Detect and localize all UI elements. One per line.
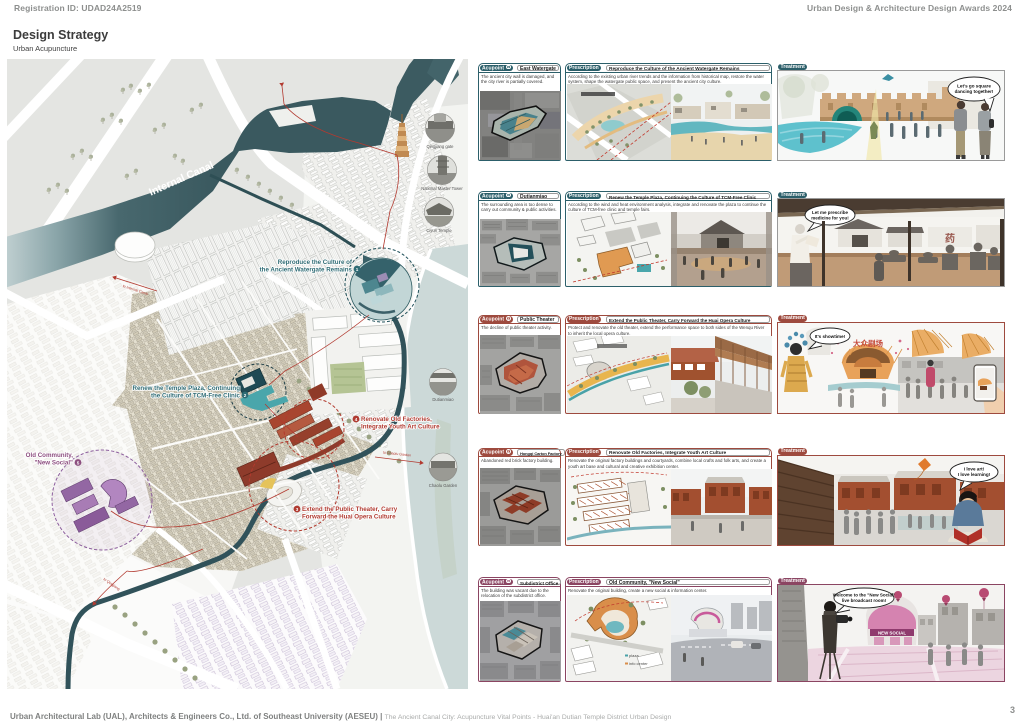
svg-text:Let's go square: Let's go square xyxy=(957,84,991,89)
svg-text:Dutianmiao: Dutianmiao xyxy=(432,397,454,402)
svg-text:NEW SOCIAL: NEW SOCIAL xyxy=(878,631,906,636)
svg-text:Qingjiang gate: Qingjiang gate xyxy=(426,144,454,149)
svg-text:"New Social": "New Social" xyxy=(34,460,73,467)
svg-text:Let me prescribe: Let me prescribe xyxy=(812,210,849,215)
svg-text:Ciyun Temple: Ciyun Temple xyxy=(426,228,452,233)
svg-text:1: 1 xyxy=(356,267,359,272)
svg-text:5: 5 xyxy=(77,461,80,466)
svg-text:Reproduce the Culture of: Reproduce the Culture of xyxy=(278,259,353,266)
svg-text:medicine for you!: medicine for you! xyxy=(811,216,849,221)
svg-text:I love learning!: I love learning! xyxy=(958,472,991,477)
svg-text:plaza: plaza xyxy=(629,653,639,658)
svg-text:4: 4 xyxy=(355,417,358,422)
svg-text:Integrate Youth Art Culture: Integrate Youth Art Culture xyxy=(361,424,440,431)
svg-text:Renew the Temple Plaza, Contin: Renew the Temple Plaza, Continuing xyxy=(133,385,241,392)
svg-text:药: 药 xyxy=(945,232,955,245)
svg-text:Forward the Huai Opera Culture: Forward the Huai Opera Culture xyxy=(302,514,396,521)
svg-text:It's showtime!: It's showtime! xyxy=(815,334,846,339)
svg-text:Renovate Old Factories,: Renovate Old Factories, xyxy=(361,416,432,423)
svg-text:2: 2 xyxy=(244,393,247,398)
svg-text:大众剧场: 大众剧场 xyxy=(853,338,883,348)
svg-text:Extend the Public Theater, Car: Extend the Public Theater, Carry xyxy=(302,506,398,513)
svg-text:Welcome to the "New Social": Welcome to the "New Social" xyxy=(833,593,895,598)
svg-text:info center: info center xyxy=(629,661,648,666)
svg-text:I love art!: I love art! xyxy=(964,466,985,471)
svg-text:dancing together!: dancing together! xyxy=(955,89,994,94)
svg-text:Chaolu Garden: Chaolu Garden xyxy=(429,483,458,488)
svg-text:the Ancient Watergate Remains: the Ancient Watergate Remains xyxy=(260,267,353,274)
svg-text:the Culture of TCM-Free Clinic: the Culture of TCM-Free Clinic xyxy=(151,393,241,400)
svg-text:National Master Tower: National Master Tower xyxy=(421,186,463,191)
svg-text:live broadcast room!: live broadcast room! xyxy=(842,598,887,603)
svg-text:3: 3 xyxy=(296,507,299,512)
svg-text:Old Community,: Old Community, xyxy=(26,452,74,459)
